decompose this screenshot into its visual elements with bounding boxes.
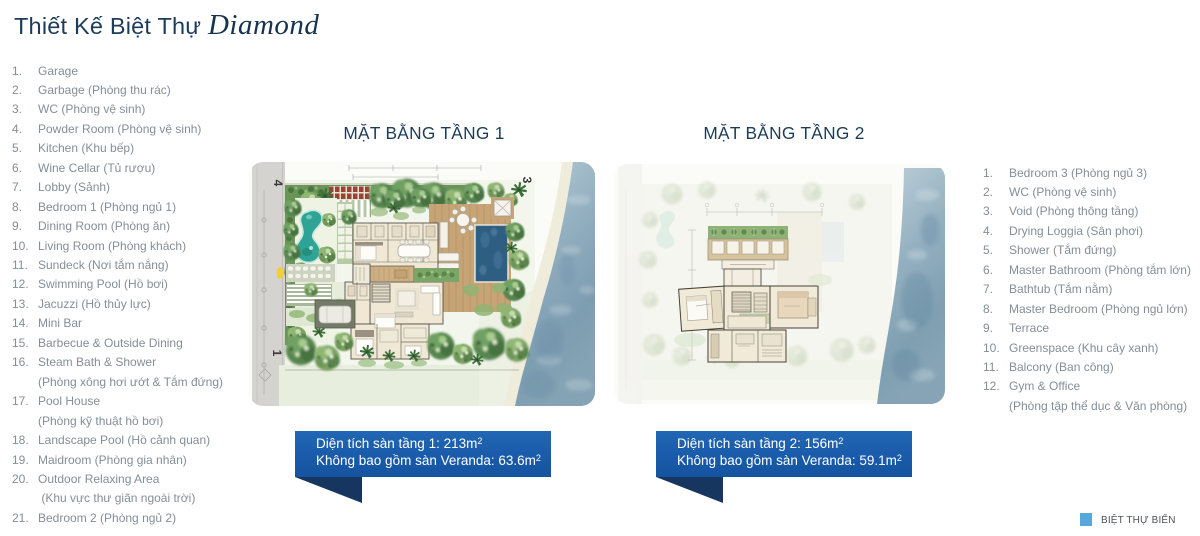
svg-text:3: 3: [520, 177, 534, 184]
svg-text:4: 4: [271, 180, 285, 187]
svg-text:1: 1: [270, 350, 284, 357]
